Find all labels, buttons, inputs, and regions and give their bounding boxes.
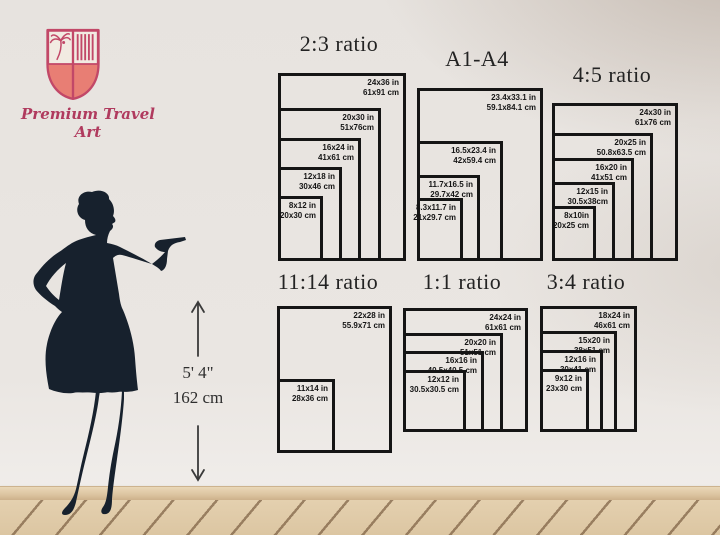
size-box-22x28: 22x28 in55.9x71 cm 11x14 in28x36 cm <box>277 306 392 453</box>
size-inches: 20x25 in <box>597 138 646 148</box>
size-box-8x12: 8x12 in20x30 cm <box>281 196 323 258</box>
size-box-9x12: 9x12 in23x30 cm <box>543 369 589 429</box>
size-cm: 30x46 cm <box>299 182 335 192</box>
poster-size-guide: Premium Travel Art 5' 4" 162 cm 2:3 rati… <box>0 0 720 535</box>
size-box-8x10: 8x10in20x25 cm <box>555 206 596 258</box>
size-label: 12x18 in30x46 cm <box>299 172 335 193</box>
size-cm: 61x91 cm <box>363 88 399 98</box>
size-inches: 22x28 in <box>342 311 385 321</box>
chart-title: 2:3 ratio <box>258 31 420 57</box>
size-inches: 16x24 in <box>318 143 354 153</box>
chart-title: 3:4 ratio <box>526 269 646 295</box>
size-inches: 9x12 in <box>546 374 582 384</box>
size-label: 11x14 in28x36 cm <box>292 384 328 405</box>
size-label: 8.3x11.7 in21x29.7 cm <box>413 203 456 224</box>
size-cm: 59.1x84.1 cm <box>487 103 536 113</box>
size-label: 20x30 in51x76cm <box>340 113 374 134</box>
size-inches: 12x12 in <box>410 375 459 385</box>
woman-silhouette <box>28 185 193 520</box>
size-box-a1: 23.4x33.1 in59.1x84.1 cm 16.5x23.4 in42x… <box>417 88 543 261</box>
size-inches: 12x16 in <box>560 355 596 365</box>
chart-title: 4:5 ratio <box>552 62 672 88</box>
size-label: 24x36 in61x91 cm <box>363 78 399 99</box>
size-label: 12x12 in30.5x30.5 cm <box>410 375 459 396</box>
size-box-24x30: 24x30 in61x76 cm 20x25 in50.8x63.5 cm 16… <box>552 103 678 261</box>
size-inches: 16.5x23.4 in <box>451 146 496 156</box>
size-inches: 8.3x11.7 in <box>413 203 456 213</box>
size-cm: 41x61 cm <box>318 153 354 163</box>
chart-title: A1-A4 <box>417 46 537 72</box>
size-cm: 21x29.7 cm <box>413 213 456 223</box>
height-metric: 162 cm <box>158 386 238 411</box>
size-cm: 42x59.4 cm <box>451 156 496 166</box>
size-inches: 8x10in <box>553 211 589 221</box>
size-inches: 16x16 in <box>428 356 477 366</box>
brand-shield-icon <box>44 26 102 102</box>
size-label: 8x12 in20x30 cm <box>280 201 316 222</box>
size-cm: 20x25 cm <box>553 221 589 231</box>
size-box-24x36: 24x36 in61x91 cm 20x30 in51x76cm 16x24 i… <box>278 73 406 261</box>
size-label: 18x24 in46x61 cm <box>594 311 630 332</box>
size-inches: 20x30 in <box>340 113 374 123</box>
size-label: 16.5x23.4 in42x59.4 cm <box>451 146 496 167</box>
size-label: 22x28 in55.9x71 cm <box>342 311 385 332</box>
size-label: 24x24 in61x61 cm <box>485 313 521 334</box>
size-inches: 23.4x33.1 in <box>487 93 536 103</box>
size-label: 24x30 in61x76 cm <box>635 108 671 129</box>
size-label: 23.4x33.1 in59.1x84.1 cm <box>487 93 536 114</box>
size-inches: 18x24 in <box>594 311 630 321</box>
size-cm: 28x36 cm <box>292 394 328 404</box>
size-label: 12x15 in30.5x38cm <box>568 187 608 208</box>
size-inches: 24x30 in <box>635 108 671 118</box>
size-inches: 24x24 in <box>485 313 521 323</box>
size-cm: 30.5x30.5 cm <box>410 385 459 395</box>
size-cm: 51x76cm <box>340 123 374 133</box>
size-box-a4: 8.3x11.7 in21x29.7 cm <box>420 198 463 258</box>
height-imperial: 5' 4" <box>158 361 238 386</box>
size-box-12x12: 12x12 in30.5x30.5 cm <box>406 370 466 429</box>
size-inches: 8x12 in <box>280 201 316 211</box>
size-label: 16x24 in41x61 cm <box>318 143 354 164</box>
size-cm: 20x30 cm <box>280 211 316 221</box>
size-inches: 24x36 in <box>363 78 399 88</box>
size-label: 20x25 in50.8x63.5 cm <box>597 138 646 159</box>
size-box-24x24: 24x24 in61x61 cm 20x20 in51x51 cm 16x16 … <box>403 308 528 432</box>
size-inches: 11x14 in <box>292 384 328 394</box>
size-label: 8x10in20x25 cm <box>553 211 589 232</box>
size-inches: 12x15 in <box>568 187 608 197</box>
size-cm: 61x76 cm <box>635 118 671 128</box>
size-inches: 11.7x16.5 in <box>429 180 473 190</box>
chart-title: 11:14 ratio <box>247 269 409 295</box>
size-cm: 55.9x71 cm <box>342 321 385 331</box>
size-box-11x14: 11x14 in28x36 cm <box>280 379 335 450</box>
size-inches: 12x18 in <box>299 172 335 182</box>
brand-name: Premium Travel Art <box>10 105 166 141</box>
height-text: 5' 4" 162 cm <box>158 361 238 410</box>
size-inches: 15x20 in <box>574 336 610 346</box>
size-inches: 20x20 in <box>460 338 496 348</box>
size-label: 9x12 in23x30 cm <box>546 374 582 395</box>
size-cm: 23x30 cm <box>546 384 582 394</box>
chart-title: 1:1 ratio <box>402 269 522 295</box>
size-box-18x24: 18x24 in46x61 cm 15x20 in38x51 cm 12x16 … <box>540 306 637 432</box>
size-label: 16x20 in41x51 cm <box>591 163 627 184</box>
size-inches: 16x20 in <box>591 163 627 173</box>
